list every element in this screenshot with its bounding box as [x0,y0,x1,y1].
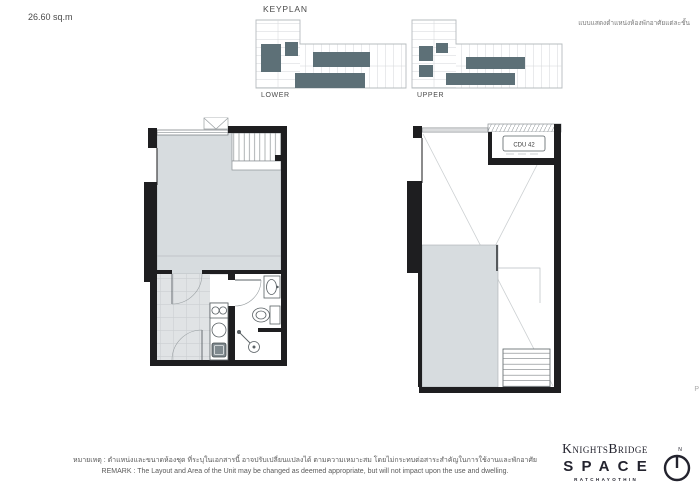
staircase [232,133,281,170]
cdu-label: CDU 42 [513,143,535,149]
stove-burner [219,307,226,314]
floor-position-note: แบบแสดงตำแหน่งห้องพักอาศัยแต่ละชั้น [578,18,690,28]
window [157,130,228,135]
cdu-platform: CDU 42 [488,124,561,165]
upper-floor-plan: CDU 42 [402,103,567,395]
remark-block: หมายเหตุ : ตำแหน่งและขนาดห้องชุด ที่ระบุ… [70,455,540,477]
project-name: SPACE [546,458,664,475]
lower-floor-plan [122,110,317,370]
svg-text:N: N [678,447,682,453]
keyplan-title: KEYPLAN [263,4,308,14]
basin [264,276,280,298]
remark-thai: หมายเหตุ : ตำแหน่งและขนาดห้องชุด ที่ระบุ… [70,455,540,466]
keyplan-upper-label: UPPER [417,92,444,99]
keyplan-lower-icon [250,16,408,92]
keyplan-upper-icon [406,16,564,92]
brand-logo: KnightsBridge SPACE RATCHAYOTHIN [546,441,664,482]
remark-english: REMARK : The Layout and Area of the Unit… [70,466,540,477]
project-location: RATCHAYOTHIN [546,477,664,482]
ac-condenser-icon [204,118,228,129]
unit-area-label: 26.60 sq.m [28,12,73,22]
stove-burner [212,307,219,314]
kitchen-counter [210,303,228,360]
keyplan-lower-label: LOWER [261,92,290,99]
brand-name: KnightsBridge [546,441,664,457]
edge-cutoff-text: P [694,386,699,393]
sink [212,323,226,337]
window [422,128,488,132]
north-arrow-icon: N [659,444,695,486]
loft-floor [422,245,498,387]
stair-treads [503,349,550,387]
